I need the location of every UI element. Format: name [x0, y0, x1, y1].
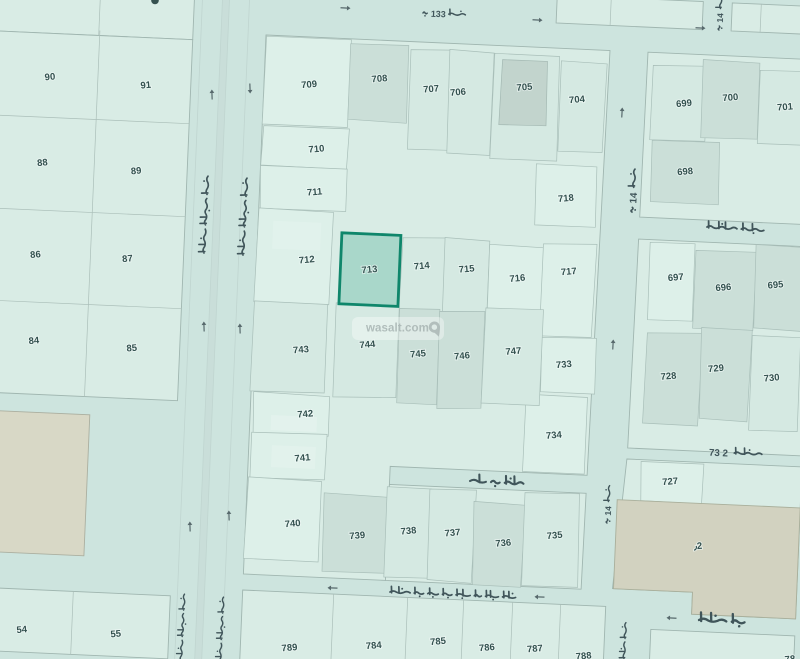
svg-text:742: 742: [297, 408, 314, 420]
svg-text:787: 787: [527, 643, 544, 655]
svg-text:786: 786: [479, 642, 496, 654]
svg-text:wasalt.com: wasalt.com: [365, 323, 429, 335]
svg-text:73 2: 73 2: [709, 448, 729, 460]
svg-text:713: 713: [361, 264, 378, 276]
svg-text:704: 704: [569, 94, 586, 106]
svg-text:90: 90: [44, 71, 55, 83]
svg-text:85: 85: [126, 343, 138, 355]
svg-text:736: 736: [495, 537, 512, 549]
svg-text:717: 717: [560, 266, 577, 278]
svg-text:785: 785: [430, 636, 447, 648]
svg-text:14: 14: [628, 192, 640, 204]
svg-text:729: 729: [708, 363, 725, 375]
svg-text:695: 695: [767, 279, 784, 291]
svg-text:740: 740: [284, 518, 301, 530]
svg-text:701: 701: [777, 101, 794, 113]
svg-text:91: 91: [140, 80, 152, 92]
svg-text:728: 728: [660, 371, 677, 383]
svg-text:714: 714: [413, 260, 430, 272]
svg-text:734: 734: [546, 429, 563, 441]
svg-text:88: 88: [37, 157, 48, 169]
svg-text:733: 733: [556, 359, 573, 371]
svg-text:133: 133: [431, 9, 446, 20]
svg-text:737: 737: [444, 527, 461, 539]
svg-text:709: 709: [301, 79, 318, 91]
svg-text:730: 730: [763, 372, 780, 384]
svg-text:698: 698: [677, 166, 694, 178]
svg-text:718: 718: [558, 193, 575, 205]
svg-text:747: 747: [505, 346, 522, 358]
svg-text:739: 739: [349, 530, 366, 542]
svg-text:706: 706: [450, 87, 467, 99]
svg-text:789: 789: [281, 642, 298, 654]
svg-text:89: 89: [130, 165, 141, 177]
svg-text:715: 715: [458, 263, 475, 275]
svg-text:14: 14: [603, 505, 614, 515]
svg-text:14: 14: [715, 12, 726, 22]
svg-text:743: 743: [293, 344, 310, 356]
svg-text:738: 738: [400, 525, 417, 537]
svg-text:84: 84: [28, 335, 40, 347]
svg-text:784: 784: [365, 640, 382, 652]
svg-text:86: 86: [30, 249, 41, 261]
svg-text:712: 712: [298, 254, 315, 266]
svg-text:716: 716: [509, 273, 526, 285]
svg-text:741: 741: [294, 452, 311, 464]
svg-text:55: 55: [110, 628, 122, 640]
svg-text:54: 54: [16, 624, 28, 636]
svg-text:697: 697: [667, 272, 684, 284]
svg-text:710: 710: [308, 143, 325, 155]
svg-text:727: 727: [662, 476, 679, 488]
svg-text:87: 87: [122, 253, 133, 265]
svg-text:696: 696: [715, 282, 732, 294]
svg-text:78: 78: [784, 654, 795, 659]
svg-text:744: 744: [359, 339, 376, 351]
svg-text:735: 735: [546, 530, 563, 542]
svg-text:745: 745: [410, 348, 427, 360]
svg-text:708: 708: [371, 73, 388, 85]
svg-text:700: 700: [722, 92, 739, 104]
svg-text:788: 788: [575, 650, 592, 659]
svg-text:699: 699: [676, 98, 693, 110]
svg-text:707: 707: [423, 83, 440, 95]
svg-text:٫2: ٫2: [692, 541, 702, 553]
svg-text:705: 705: [516, 81, 533, 93]
svg-text:711: 711: [307, 186, 324, 198]
svg-text:746: 746: [454, 350, 471, 362]
